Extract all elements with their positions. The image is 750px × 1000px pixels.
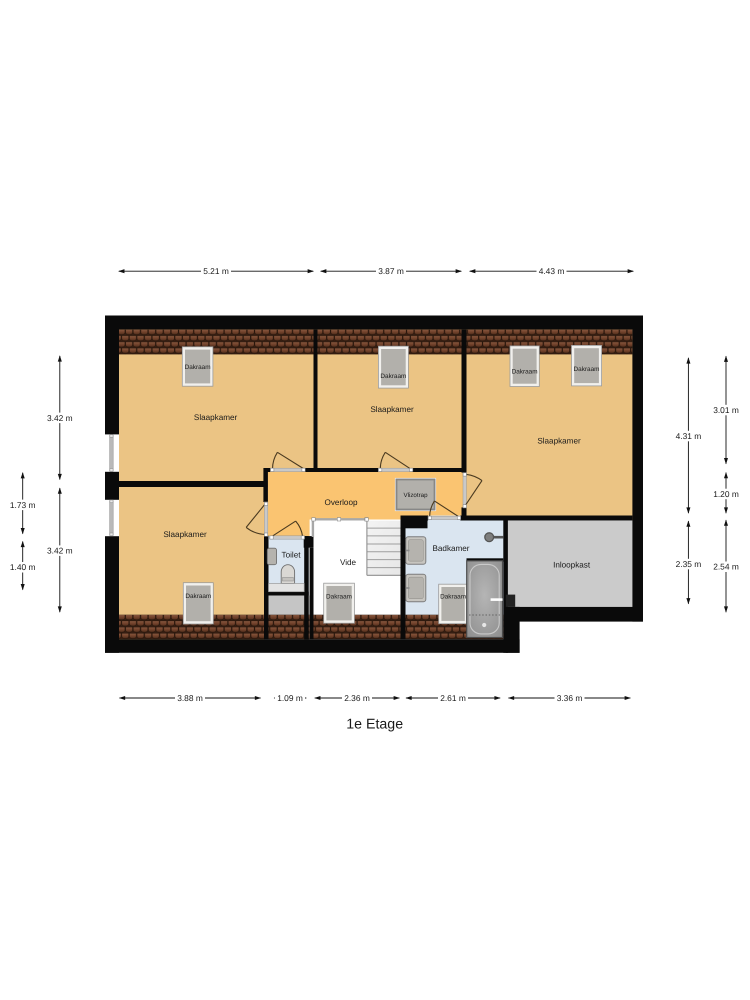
svg-text:Dakraam: Dakraam [185, 364, 211, 371]
svg-text:2.35 m: 2.35 m [676, 559, 702, 569]
svg-text:1e Etage: 1e Etage [346, 716, 403, 732]
svg-text:3.88 m: 3.88 m [177, 693, 203, 703]
svg-text:Inloopkast: Inloopkast [553, 560, 591, 569]
svg-text:1.09 m: 1.09 m [277, 693, 303, 703]
svg-text:Slaapkamer: Slaapkamer [194, 413, 238, 422]
svg-text:Toilet: Toilet [282, 550, 302, 559]
svg-text:Dakraam: Dakraam [185, 593, 211, 600]
svg-text:Overloop: Overloop [325, 498, 358, 507]
svg-text:Slaapkamer: Slaapkamer [370, 405, 414, 414]
svg-text:Dakraam: Dakraam [512, 368, 538, 375]
svg-text:Slaapkamer: Slaapkamer [163, 530, 207, 539]
svg-text:3.42 m: 3.42 m [47, 413, 73, 423]
svg-text:Dakraam: Dakraam [326, 594, 352, 601]
svg-text:1.73 m: 1.73 m [10, 500, 36, 510]
svg-text:5.21 m: 5.21 m [203, 266, 229, 276]
svg-text:1.20 m: 1.20 m [713, 489, 739, 499]
svg-text:3.87 m: 3.87 m [378, 266, 404, 276]
svg-text:Vide: Vide [340, 558, 357, 567]
svg-text:Dakraam: Dakraam [440, 594, 466, 601]
svg-text:4.43 m: 4.43 m [539, 266, 565, 276]
svg-text:3.36 m: 3.36 m [557, 693, 583, 703]
svg-text:Dakraam: Dakraam [380, 373, 406, 380]
svg-text:1.40 m: 1.40 m [10, 562, 36, 572]
svg-text:Dakraam: Dakraam [574, 366, 600, 373]
svg-text:4.31 m: 4.31 m [676, 431, 702, 441]
svg-text:3.42 m: 3.42 m [47, 546, 73, 556]
svg-text:Slaapkamer: Slaapkamer [537, 436, 581, 445]
svg-text:Vlizotrap: Vlizotrap [403, 492, 428, 499]
svg-text:3.01 m: 3.01 m [713, 405, 739, 415]
svg-text:2.36 m: 2.36 m [344, 693, 370, 703]
svg-text:2.54 m: 2.54 m [713, 562, 739, 572]
svg-text:2.61 m: 2.61 m [440, 693, 466, 703]
svg-text:Badkamer: Badkamer [432, 544, 469, 553]
